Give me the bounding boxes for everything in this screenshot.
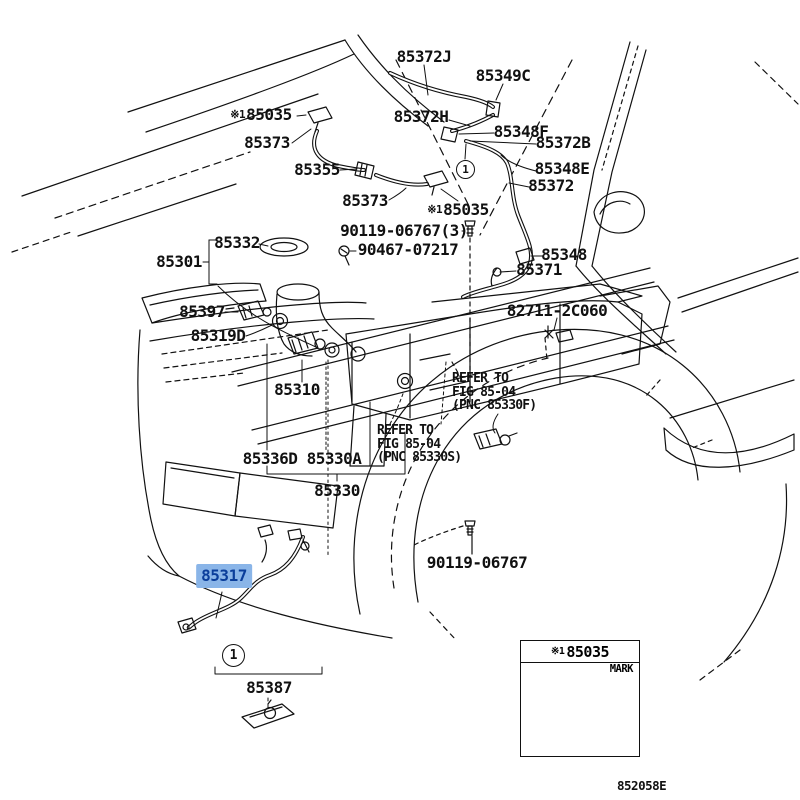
part-label-85317-selected[interactable]: 85317	[196, 568, 252, 584]
vehicle-hood-lines	[12, 35, 798, 252]
inset-detail-box: ※1 85035 MARK	[520, 640, 640, 757]
part-label-85372h[interactable]: 85372H	[394, 109, 449, 125]
inset-title: ※1 85035	[521, 641, 639, 663]
part-label-85373-lower[interactable]: 85373	[342, 193, 388, 209]
part-label-90119-06767-3[interactable]: 90119-06767(3)	[340, 223, 468, 239]
inset-mark-label: MARK	[610, 663, 633, 675]
part-label-90467-07217[interactable]: 90467-07217	[358, 242, 458, 258]
part-label-85035-lower[interactable]: ※185035	[427, 202, 489, 218]
vehicle-side-lines	[576, 42, 798, 680]
part-label-85387[interactable]: 85387	[246, 680, 292, 696]
part-label-85397[interactable]: 85397	[179, 304, 225, 320]
refer-note-85330f: REFER TO FIG 85-04 (PNC 85330F)	[452, 372, 536, 413]
part-label-85336d-85330a[interactable]: 85336D 85330A	[243, 451, 362, 467]
license-lamp-icon	[242, 700, 294, 728]
part-label-85373-upper[interactable]: 85373	[244, 135, 290, 151]
footnote-marker: ※1	[551, 646, 564, 657]
part-label-85349c[interactable]: 85349C	[476, 68, 531, 84]
callout-circle-1-top: 1	[456, 160, 475, 179]
footnote-marker: ※1	[427, 203, 442, 216]
part-label-85301[interactable]: 85301	[156, 254, 202, 270]
selected-part-highlight: 85317	[196, 564, 252, 588]
part-label-85035-upper[interactable]: ※185035	[230, 107, 292, 123]
callout-circle-1-bottom: 1	[222, 644, 245, 667]
wheel-arch	[354, 329, 740, 640]
part-label-85332[interactable]: 85332	[214, 235, 260, 251]
footnote-marker: ※1	[230, 108, 245, 121]
part-label-85355[interactable]: 85355	[294, 162, 340, 178]
figure-code: 852058E	[617, 778, 666, 793]
part-label-82711-2c060[interactable]: 82711-2C060	[507, 303, 607, 319]
part-label-85310[interactable]: 85310	[274, 382, 320, 398]
part-label-85330[interactable]: 85330	[314, 483, 360, 499]
parts-diagram-canvas: 85372J 85349C ※185035 85372H 85348F 8537…	[0, 0, 800, 800]
part-label-85319d[interactable]: 85319D	[191, 328, 246, 344]
part-label-85372j[interactable]: 85372J	[397, 49, 452, 65]
washer-tank	[260, 238, 670, 466]
part-label-85348e[interactable]: 85348E	[535, 161, 590, 177]
part-label-85372[interactable]: 85372	[528, 178, 574, 194]
part-label-90119-06767[interactable]: 90119-06767	[427, 555, 527, 571]
part-label-85372b[interactable]: 85372B	[536, 135, 591, 151]
part-label-85371[interactable]: 85371	[516, 262, 562, 278]
refer-note-85330s: REFER TO FIG 85-04 (PNC 85330S)	[377, 424, 461, 465]
